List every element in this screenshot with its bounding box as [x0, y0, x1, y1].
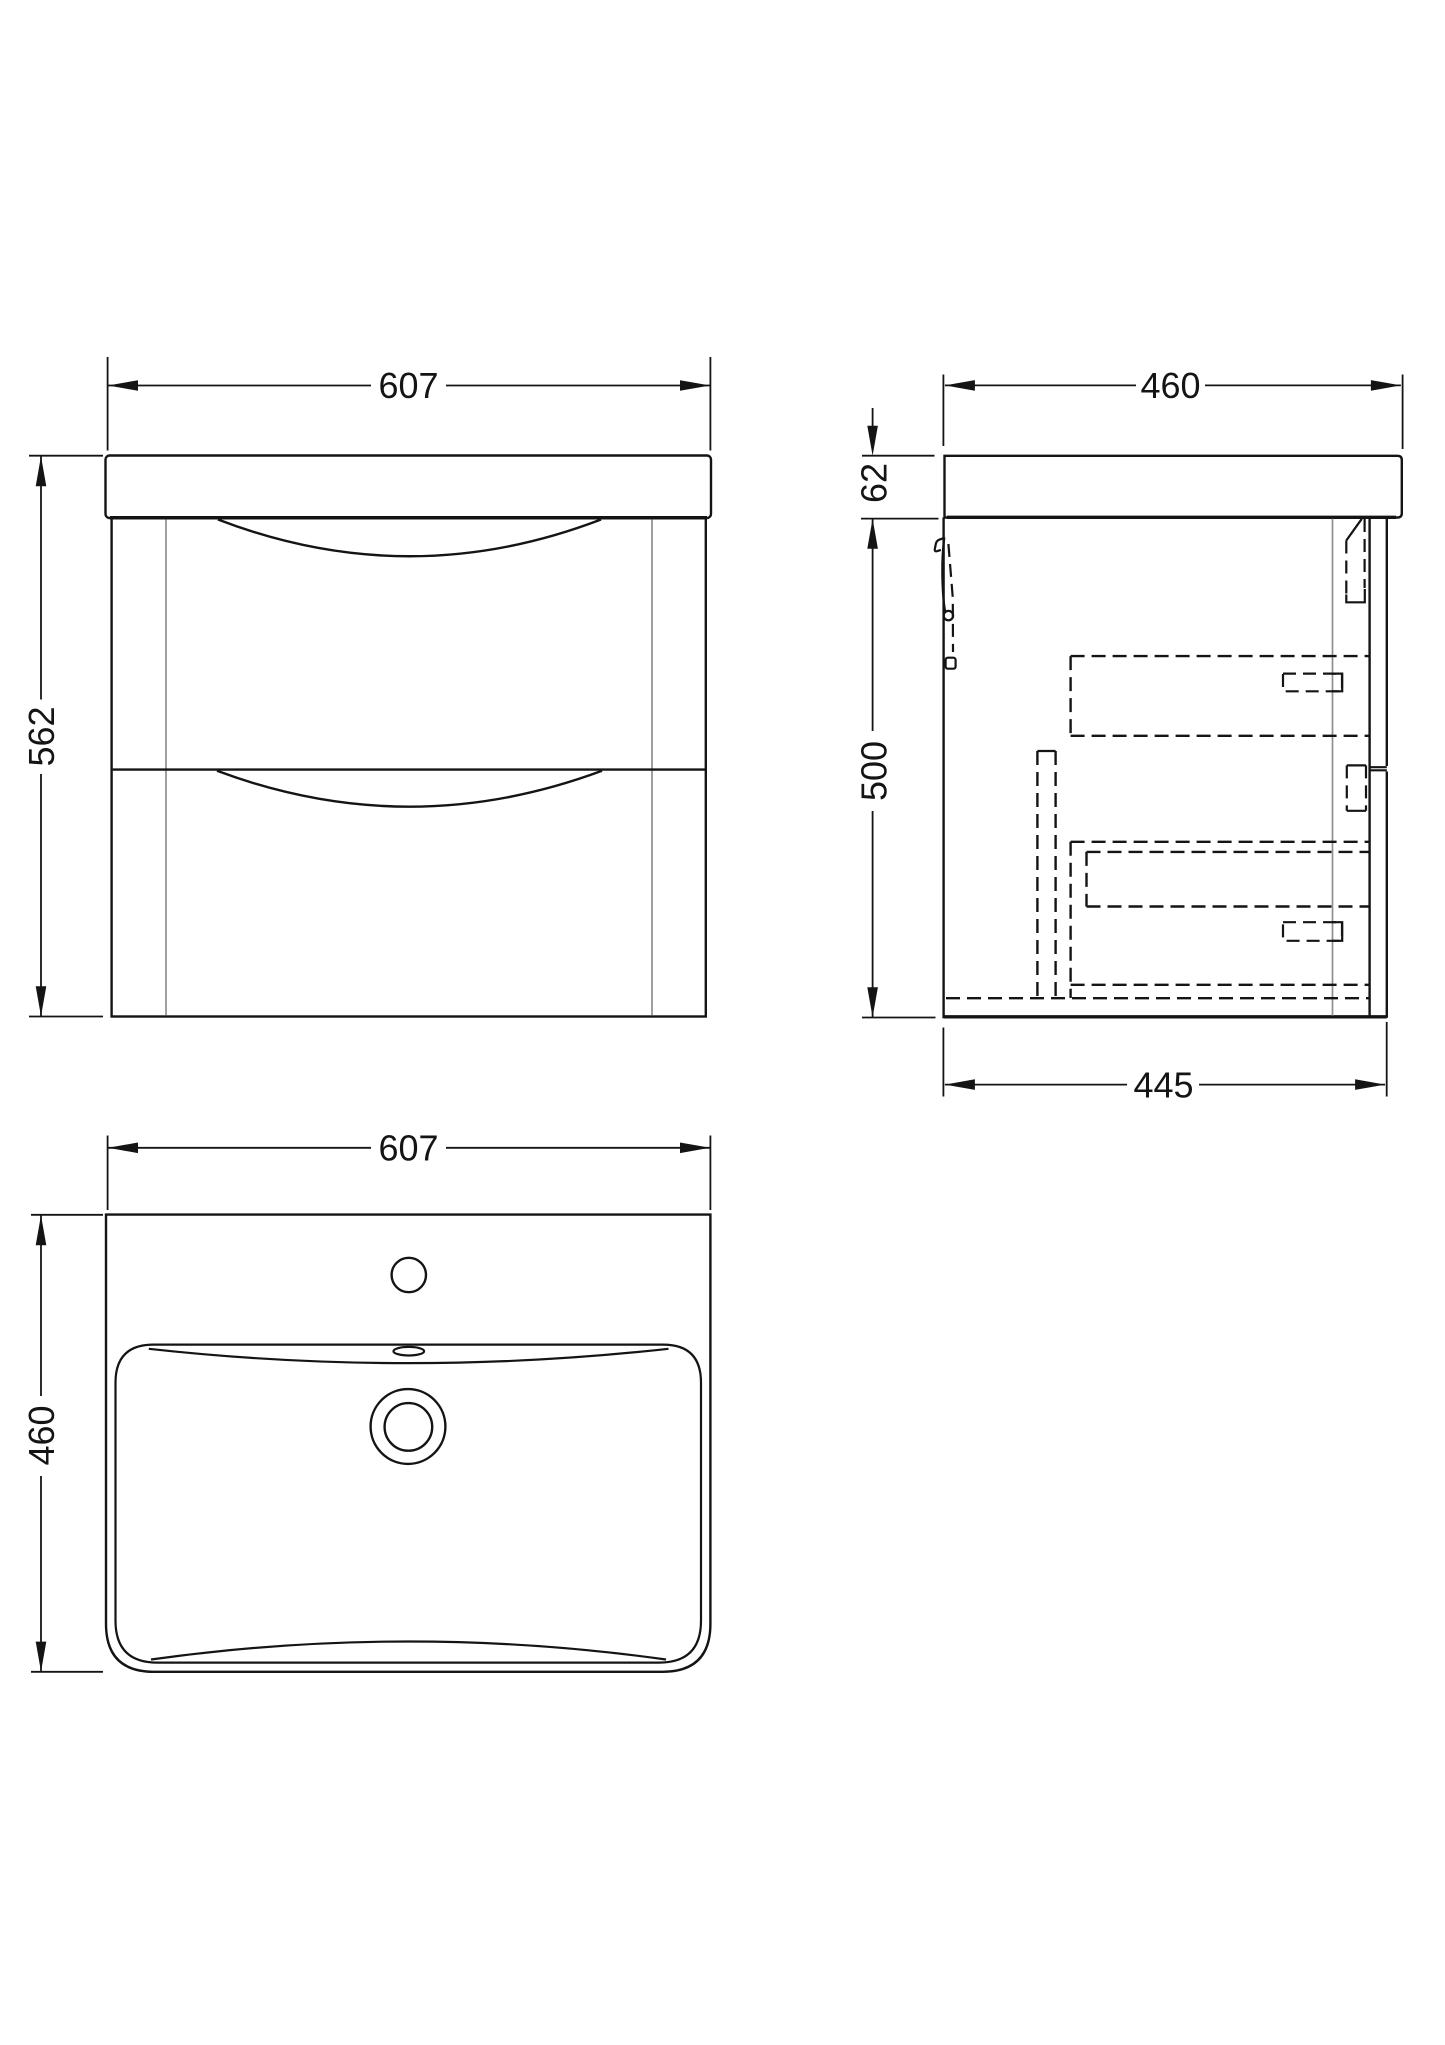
svg-text:607: 607: [378, 1128, 438, 1169]
svg-text:445: 445: [1133, 1064, 1193, 1105]
svg-text:607: 607: [378, 365, 438, 406]
svg-text:562: 562: [21, 706, 62, 766]
svg-text:62: 62: [853, 463, 894, 503]
svg-text:460: 460: [1140, 365, 1200, 406]
svg-text:500: 500: [853, 741, 894, 801]
svg-text:460: 460: [21, 1405, 62, 1465]
